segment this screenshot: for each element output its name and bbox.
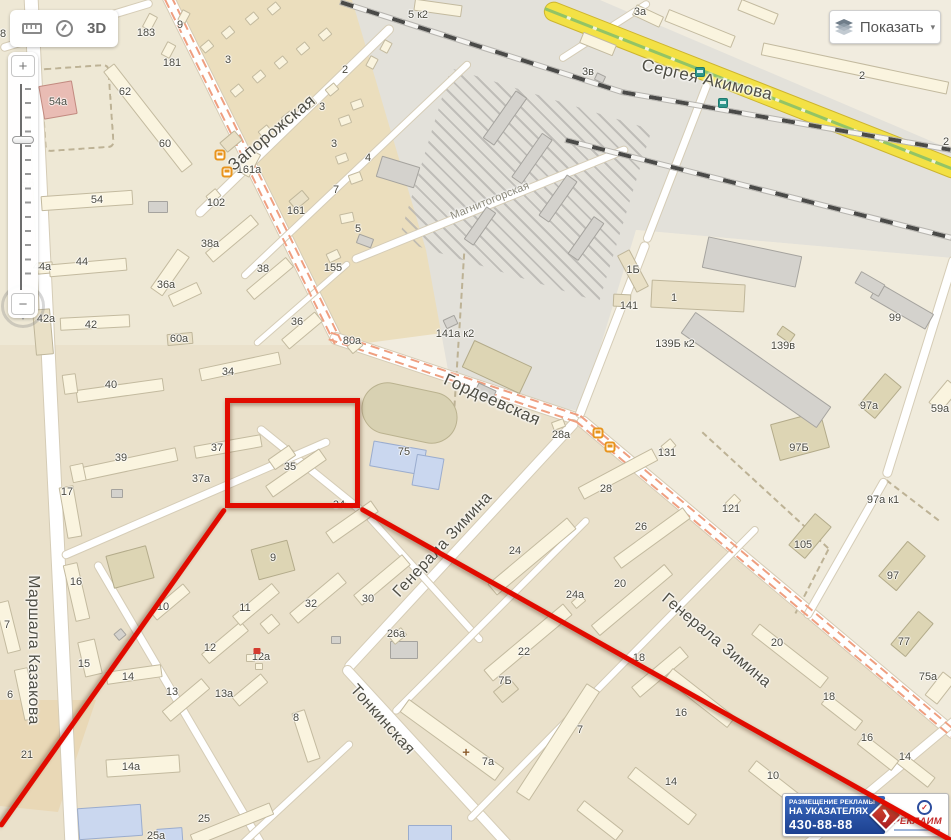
house-number: 3в bbox=[582, 66, 594, 78]
building bbox=[77, 804, 143, 840]
house-number: 80а bbox=[343, 335, 361, 347]
house-number: 60а bbox=[170, 333, 188, 345]
ad-banner-left: РАЗМЕЩЕНИЕ РЕКЛАМЫ НА УКАЗАТЕЛЯХ 430-88-… bbox=[785, 796, 885, 834]
house-number: 11 bbox=[239, 602, 250, 614]
map-toolbar: 3D bbox=[10, 10, 118, 47]
house-number: 99 bbox=[889, 312, 901, 324]
house-number: 13а bbox=[215, 688, 233, 700]
house-number: 2 bbox=[342, 64, 348, 76]
house-number: 2 bbox=[859, 70, 865, 82]
house-number: 17 bbox=[61, 486, 73, 498]
house-number: 141а к2 bbox=[436, 328, 474, 340]
house-number: 21 bbox=[21, 749, 33, 761]
house-number: 141 bbox=[620, 300, 638, 312]
house-number: 44 bbox=[76, 256, 88, 268]
zoom-ticks bbox=[25, 88, 31, 286]
zoom-slider-handle[interactable] bbox=[12, 136, 34, 144]
house-number: 181 bbox=[163, 57, 181, 69]
house-number: 24а bbox=[566, 589, 584, 601]
house-number: 32 bbox=[305, 598, 317, 610]
house-number: 1 bbox=[671, 292, 677, 304]
building bbox=[255, 663, 263, 670]
layers-icon bbox=[835, 19, 853, 35]
house-number: 30 bbox=[362, 593, 374, 605]
house-number: 54 bbox=[91, 194, 103, 206]
highlight-rectangle bbox=[225, 398, 360, 508]
tram-stop-icon[interactable] bbox=[222, 167, 233, 178]
house-number: 36 bbox=[291, 316, 303, 328]
ad-line2: НА УКАЗАТЕЛЯХ bbox=[789, 806, 881, 817]
house-number: 18 bbox=[823, 691, 835, 703]
tram-stop-icon[interactable] bbox=[215, 150, 226, 161]
house-number: 8 bbox=[293, 712, 299, 724]
ad-logo-icon: ✓ bbox=[917, 800, 932, 815]
house-number: 22 bbox=[518, 646, 530, 658]
house-number: 26 bbox=[635, 521, 647, 533]
bus-stop-icon[interactable] bbox=[718, 98, 728, 108]
bus-stop-icon[interactable] bbox=[695, 67, 705, 77]
ad-line1: РАЗМЕЩЕНИЕ РЕКЛАМЫ bbox=[789, 799, 881, 806]
house-number: 16 bbox=[70, 576, 82, 588]
house-number: 4 bbox=[365, 152, 371, 164]
zoom-in-button[interactable]: + bbox=[11, 55, 35, 77]
house-number: 16 bbox=[861, 732, 873, 744]
house-number: 37а bbox=[192, 473, 210, 485]
building bbox=[650, 280, 745, 313]
building bbox=[411, 454, 444, 490]
house-number: 105 bbox=[794, 539, 812, 551]
zoom-control: + − bbox=[8, 52, 38, 318]
house-number: 139в bbox=[771, 340, 795, 352]
map-viewport[interactable]: +ЗапорожскаяСергея АкимоваМагнитогорская… bbox=[0, 0, 951, 840]
house-number: 3 bbox=[319, 101, 325, 113]
house-number: 54а bbox=[49, 96, 67, 108]
house-number: 60 bbox=[159, 138, 171, 150]
house-number: 3а bbox=[634, 6, 646, 18]
house-number: 161 bbox=[287, 205, 305, 217]
house-number: 14 bbox=[122, 671, 134, 683]
house-number: 97а bbox=[860, 400, 878, 412]
house-number: 97а к1 bbox=[867, 494, 899, 506]
house-number: 13 bbox=[166, 686, 178, 698]
house-number: 39 bbox=[115, 452, 127, 464]
house-number: 75 bbox=[398, 446, 410, 458]
house-number: 2 bbox=[943, 136, 949, 148]
building bbox=[62, 373, 79, 395]
house-number: 12 bbox=[204, 642, 216, 654]
house-number: 8 bbox=[0, 28, 6, 40]
house-number: 26а bbox=[387, 628, 405, 640]
house-number: 34 bbox=[222, 366, 234, 378]
house-number: 59а bbox=[931, 403, 949, 415]
house-number: 24 bbox=[509, 545, 521, 557]
tram-stop-icon[interactable] bbox=[605, 442, 616, 453]
house-number: 9 bbox=[177, 19, 183, 31]
house-number: 28а bbox=[552, 429, 570, 441]
map-canvas[interactable]: +ЗапорожскаяСергея АкимоваМагнитогорская… bbox=[0, 0, 951, 840]
house-number: 77 bbox=[898, 636, 910, 648]
ad-arrow-glyph: ❯ bbox=[881, 808, 891, 822]
tram-stop-icon[interactable] bbox=[593, 428, 604, 439]
house-number: 7 bbox=[333, 184, 339, 196]
house-number: 5 bbox=[355, 223, 361, 235]
panorama-icon[interactable] bbox=[56, 20, 73, 37]
house-number: 139Б к2 bbox=[655, 338, 695, 350]
house-number: 20 bbox=[614, 578, 626, 590]
street-label: Маршала Казакова bbox=[24, 575, 42, 725]
house-number: 28 bbox=[600, 483, 612, 495]
zoom-out-button[interactable]: − bbox=[11, 293, 35, 315]
shop-icon[interactable] bbox=[254, 648, 261, 654]
house-number: 3 bbox=[331, 138, 337, 150]
house-number: 1Б bbox=[626, 264, 639, 276]
house-number: 131 bbox=[658, 447, 676, 459]
house-number: 14а bbox=[122, 761, 140, 773]
house-number: 102 bbox=[207, 197, 225, 209]
zoom-track bbox=[20, 84, 22, 290]
building bbox=[111, 489, 123, 498]
building bbox=[408, 825, 452, 840]
building bbox=[331, 636, 341, 644]
caret-down-icon: ▾ bbox=[931, 22, 936, 33]
house-number: 38 bbox=[257, 263, 269, 275]
house-number: 3 bbox=[225, 54, 231, 66]
ad-phone: 430-88-88 bbox=[789, 817, 881, 832]
ad-banner[interactable]: РАЗМЕЩЕНИЕ РЕКЛАМЫ НА УКАЗАТЕЛЯХ 430-88-… bbox=[782, 793, 949, 837]
ruler-measure-icon[interactable] bbox=[22, 23, 42, 34]
house-number: 38а bbox=[201, 238, 219, 250]
house-number: 7а bbox=[482, 756, 494, 768]
house-number: 42 bbox=[85, 319, 97, 331]
house-number: 40 bbox=[105, 379, 117, 391]
show-layers-label: Показать bbox=[860, 19, 924, 36]
house-number: 7 bbox=[577, 724, 583, 736]
house-number: 183 bbox=[137, 27, 155, 39]
house-number: 37 bbox=[211, 442, 223, 454]
house-number: 25 bbox=[198, 813, 210, 825]
house-number: 155 bbox=[324, 262, 342, 274]
house-number: 14 bbox=[665, 776, 677, 788]
house-number: 62 bbox=[119, 86, 131, 98]
show-layers-button[interactable]: Показать ▾ bbox=[829, 10, 941, 44]
house-number: 7 bbox=[4, 619, 10, 631]
house-number: 75а bbox=[919, 671, 937, 683]
house-number: 97 bbox=[887, 570, 899, 582]
3d-mode-button[interactable]: 3D bbox=[87, 20, 106, 37]
house-number: 9 bbox=[270, 552, 276, 564]
house-number: 20 bbox=[771, 637, 783, 649]
house-number: 97Б bbox=[789, 442, 808, 454]
building bbox=[737, 0, 779, 25]
pharmacy-icon[interactable]: + bbox=[462, 745, 470, 760]
house-number: 16 bbox=[675, 707, 687, 719]
house-number: 121 bbox=[722, 503, 740, 515]
building bbox=[148, 201, 168, 213]
house-number: 36а bbox=[157, 279, 175, 291]
house-number: 25а bbox=[147, 830, 165, 840]
house-number: 15 bbox=[78, 658, 90, 670]
house-number: 10 bbox=[767, 770, 779, 782]
house-number: 14 bbox=[899, 751, 911, 763]
house-number: 6 bbox=[7, 689, 13, 701]
house-number: 5 к2 bbox=[408, 9, 428, 21]
house-number: 7Б bbox=[498, 675, 511, 687]
